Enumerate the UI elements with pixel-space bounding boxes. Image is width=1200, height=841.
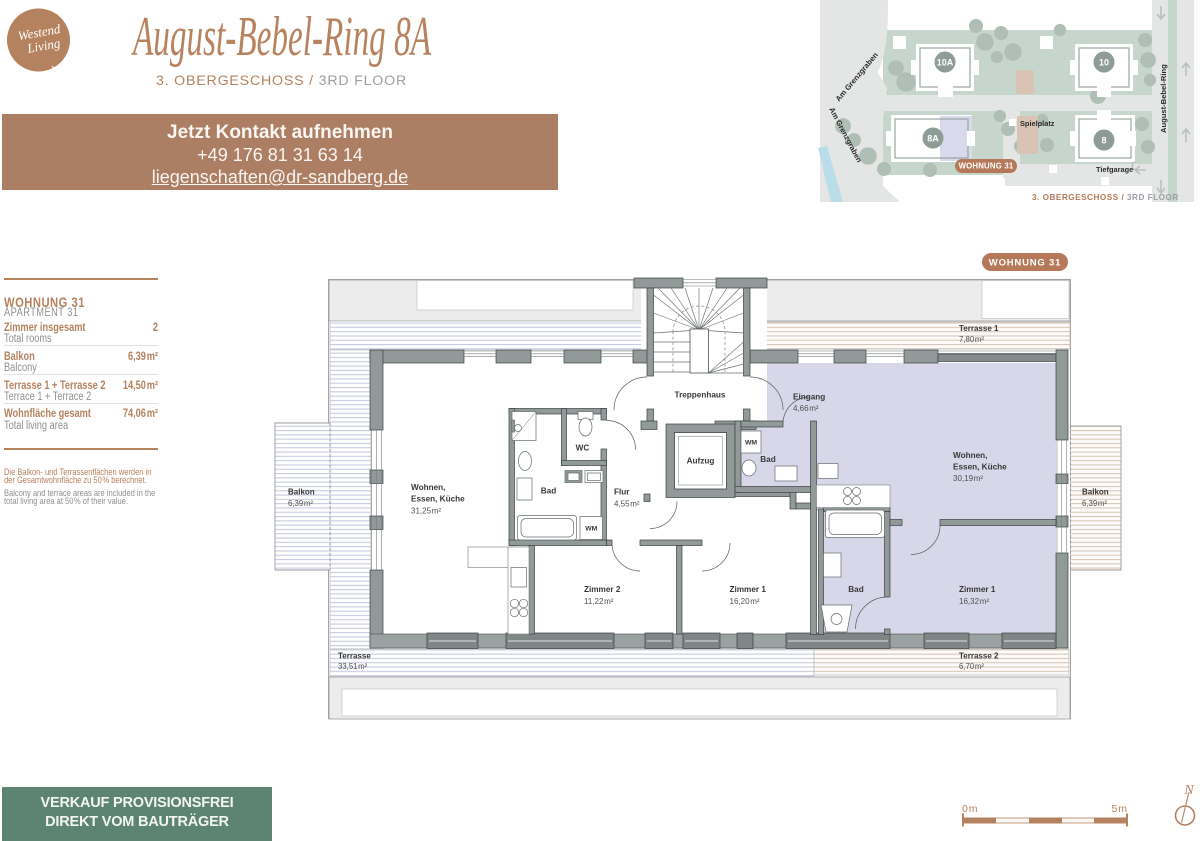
svg-text:Spielplatz: Spielplatz [1020,119,1055,128]
svg-text:Terrasse 2: Terrasse 2 [959,652,999,661]
svg-text:Essen, Küche: Essen, Küche [411,495,465,504]
svg-text:Treppenhaus: Treppenhaus [675,391,726,400]
svg-text:16,20 m²: 16,20 m² [730,597,760,606]
svg-text:Tiefgarage: Tiefgarage [1096,165,1133,174]
svg-text:31,25 m²: 31,25 m² [411,507,441,516]
svg-text:Terrasse 1: Terrasse 1 [959,324,999,333]
svg-text:WC: WC [576,444,590,453]
svg-text:Zimmer 1: Zimmer 1 [730,585,767,594]
svg-text:WOHNUNG 31: WOHNUNG 31 [959,162,1014,171]
svg-text:11,22 m²: 11,22 m² [584,597,614,606]
svg-text:6,39 m²: 6,39 m² [288,499,313,508]
svg-text:Aufzug: Aufzug [687,457,715,466]
svg-text:Terrasse: Terrasse [338,652,371,661]
svg-text:10A: 10A [937,58,954,68]
svg-text:WOHNUNG 31: WOHNUNG 31 [989,258,1061,269]
svg-text:Bad: Bad [760,455,775,464]
svg-text:5 m: 5 m [1112,803,1128,815]
svg-text:8: 8 [1101,136,1106,146]
svg-text:Essen, Küche: Essen, Küche [953,463,1007,472]
svg-text:8A: 8A [927,134,939,144]
svg-text:Wohnen,: Wohnen, [411,483,445,492]
svg-text:4,66 m²: 4,66 m² [793,404,819,413]
svg-text:4,55 m²: 4,55 m² [614,500,640,509]
svg-text:N: N [1183,783,1194,798]
svg-text:Flur: Flur [614,488,630,497]
svg-text:6,39 m²: 6,39 m² [1082,499,1107,508]
svg-text:6,70 m²: 6,70 m² [959,662,984,671]
svg-text:Zimmer 2: Zimmer 2 [584,585,621,594]
svg-text:7,80 m²: 7,80 m² [959,335,984,344]
svg-text:Bad: Bad [541,487,556,496]
svg-text:Eingang: Eingang [793,393,825,402]
svg-text:WM: WM [585,526,597,533]
svg-text:Wohnen,: Wohnen, [953,451,987,460]
svg-text:Zimmer 1: Zimmer 1 [959,585,996,594]
svg-text:3. OBERGESCHOSS / 3RD FLOOR: 3. OBERGESCHOSS / 3RD FLOOR [1032,193,1179,202]
svg-text:10: 10 [1099,58,1109,68]
svg-text:August-Bebel-Ring: August-Bebel-Ring [1159,64,1168,133]
svg-text:33,51 m²: 33,51 m² [338,662,368,671]
svg-text:Balkon: Balkon [288,488,315,497]
svg-text:Bad: Bad [848,585,863,594]
svg-text:30,19 m²: 30,19 m² [953,474,983,483]
svg-text:0 m: 0 m [962,803,978,815]
svg-text:16,32 m²: 16,32 m² [959,597,989,606]
svg-text:WM: WM [745,440,757,447]
svg-text:Balkon: Balkon [1082,488,1109,497]
